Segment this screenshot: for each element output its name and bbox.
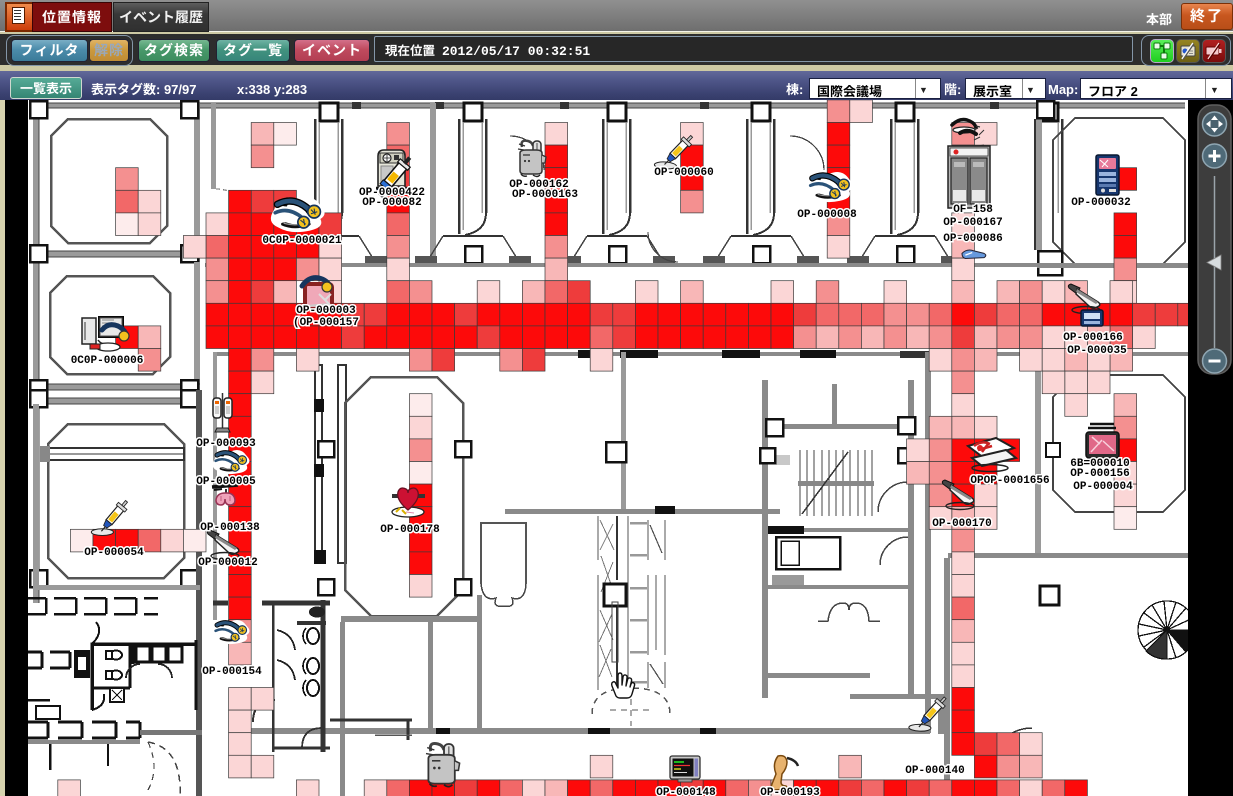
svg-text:OP-000093: OP-000093 (196, 438, 256, 450)
svg-text:OP-000086: OP-000086 (943, 233, 1002, 245)
svg-text:OP-000054: OP-000054 (84, 547, 144, 559)
svg-text:OP-000154: OP-000154 (202, 666, 262, 678)
svg-text:OP-000140: OP-000140 (905, 765, 964, 777)
svg-text:OP-000148: OP-000148 (656, 787, 716, 796)
svg-text:OF 158: OF 158 (953, 204, 993, 216)
svg-text:0C0P-000006: 0C0P-000006 (71, 355, 144, 367)
svg-text:OP-000032: OP-000032 (1071, 197, 1130, 209)
svg-text:OP-000156: OP-000156 (1070, 468, 1129, 480)
svg-text:OP-000035: OP-000035 (1067, 345, 1127, 357)
svg-text:OP-000167: OP-000167 (943, 217, 1002, 229)
svg-text:OP-000008: OP-000008 (797, 209, 857, 221)
svg-text:OP-000170: OP-000170 (932, 518, 991, 530)
svg-text:OPOP-0001656: OPOP-0001656 (970, 475, 1049, 487)
svg-text:OP-0000163: OP-0000163 (512, 189, 578, 201)
svg-text:OP-000166: OP-000166 (1063, 332, 1122, 344)
svg-text:OP-000178: OP-000178 (380, 524, 440, 536)
svg-text:(OP-000157: (OP-000157 (293, 317, 359, 329)
svg-text:0C0P-0000021: 0C0P-0000021 (262, 235, 342, 247)
svg-text:OP-000005: OP-000005 (196, 476, 256, 488)
svg-text:OP-000060: OP-000060 (654, 167, 713, 179)
svg-text:OP-000004: OP-000004 (1073, 481, 1133, 493)
svg-text:OP-000012: OP-000012 (198, 557, 257, 569)
svg-text:OP-000003: OP-000003 (296, 305, 356, 317)
svg-text:OP-000193: OP-000193 (760, 787, 820, 796)
svg-text:OP-000082: OP-000082 (362, 197, 421, 209)
svg-text:OP-000138: OP-000138 (200, 522, 260, 534)
